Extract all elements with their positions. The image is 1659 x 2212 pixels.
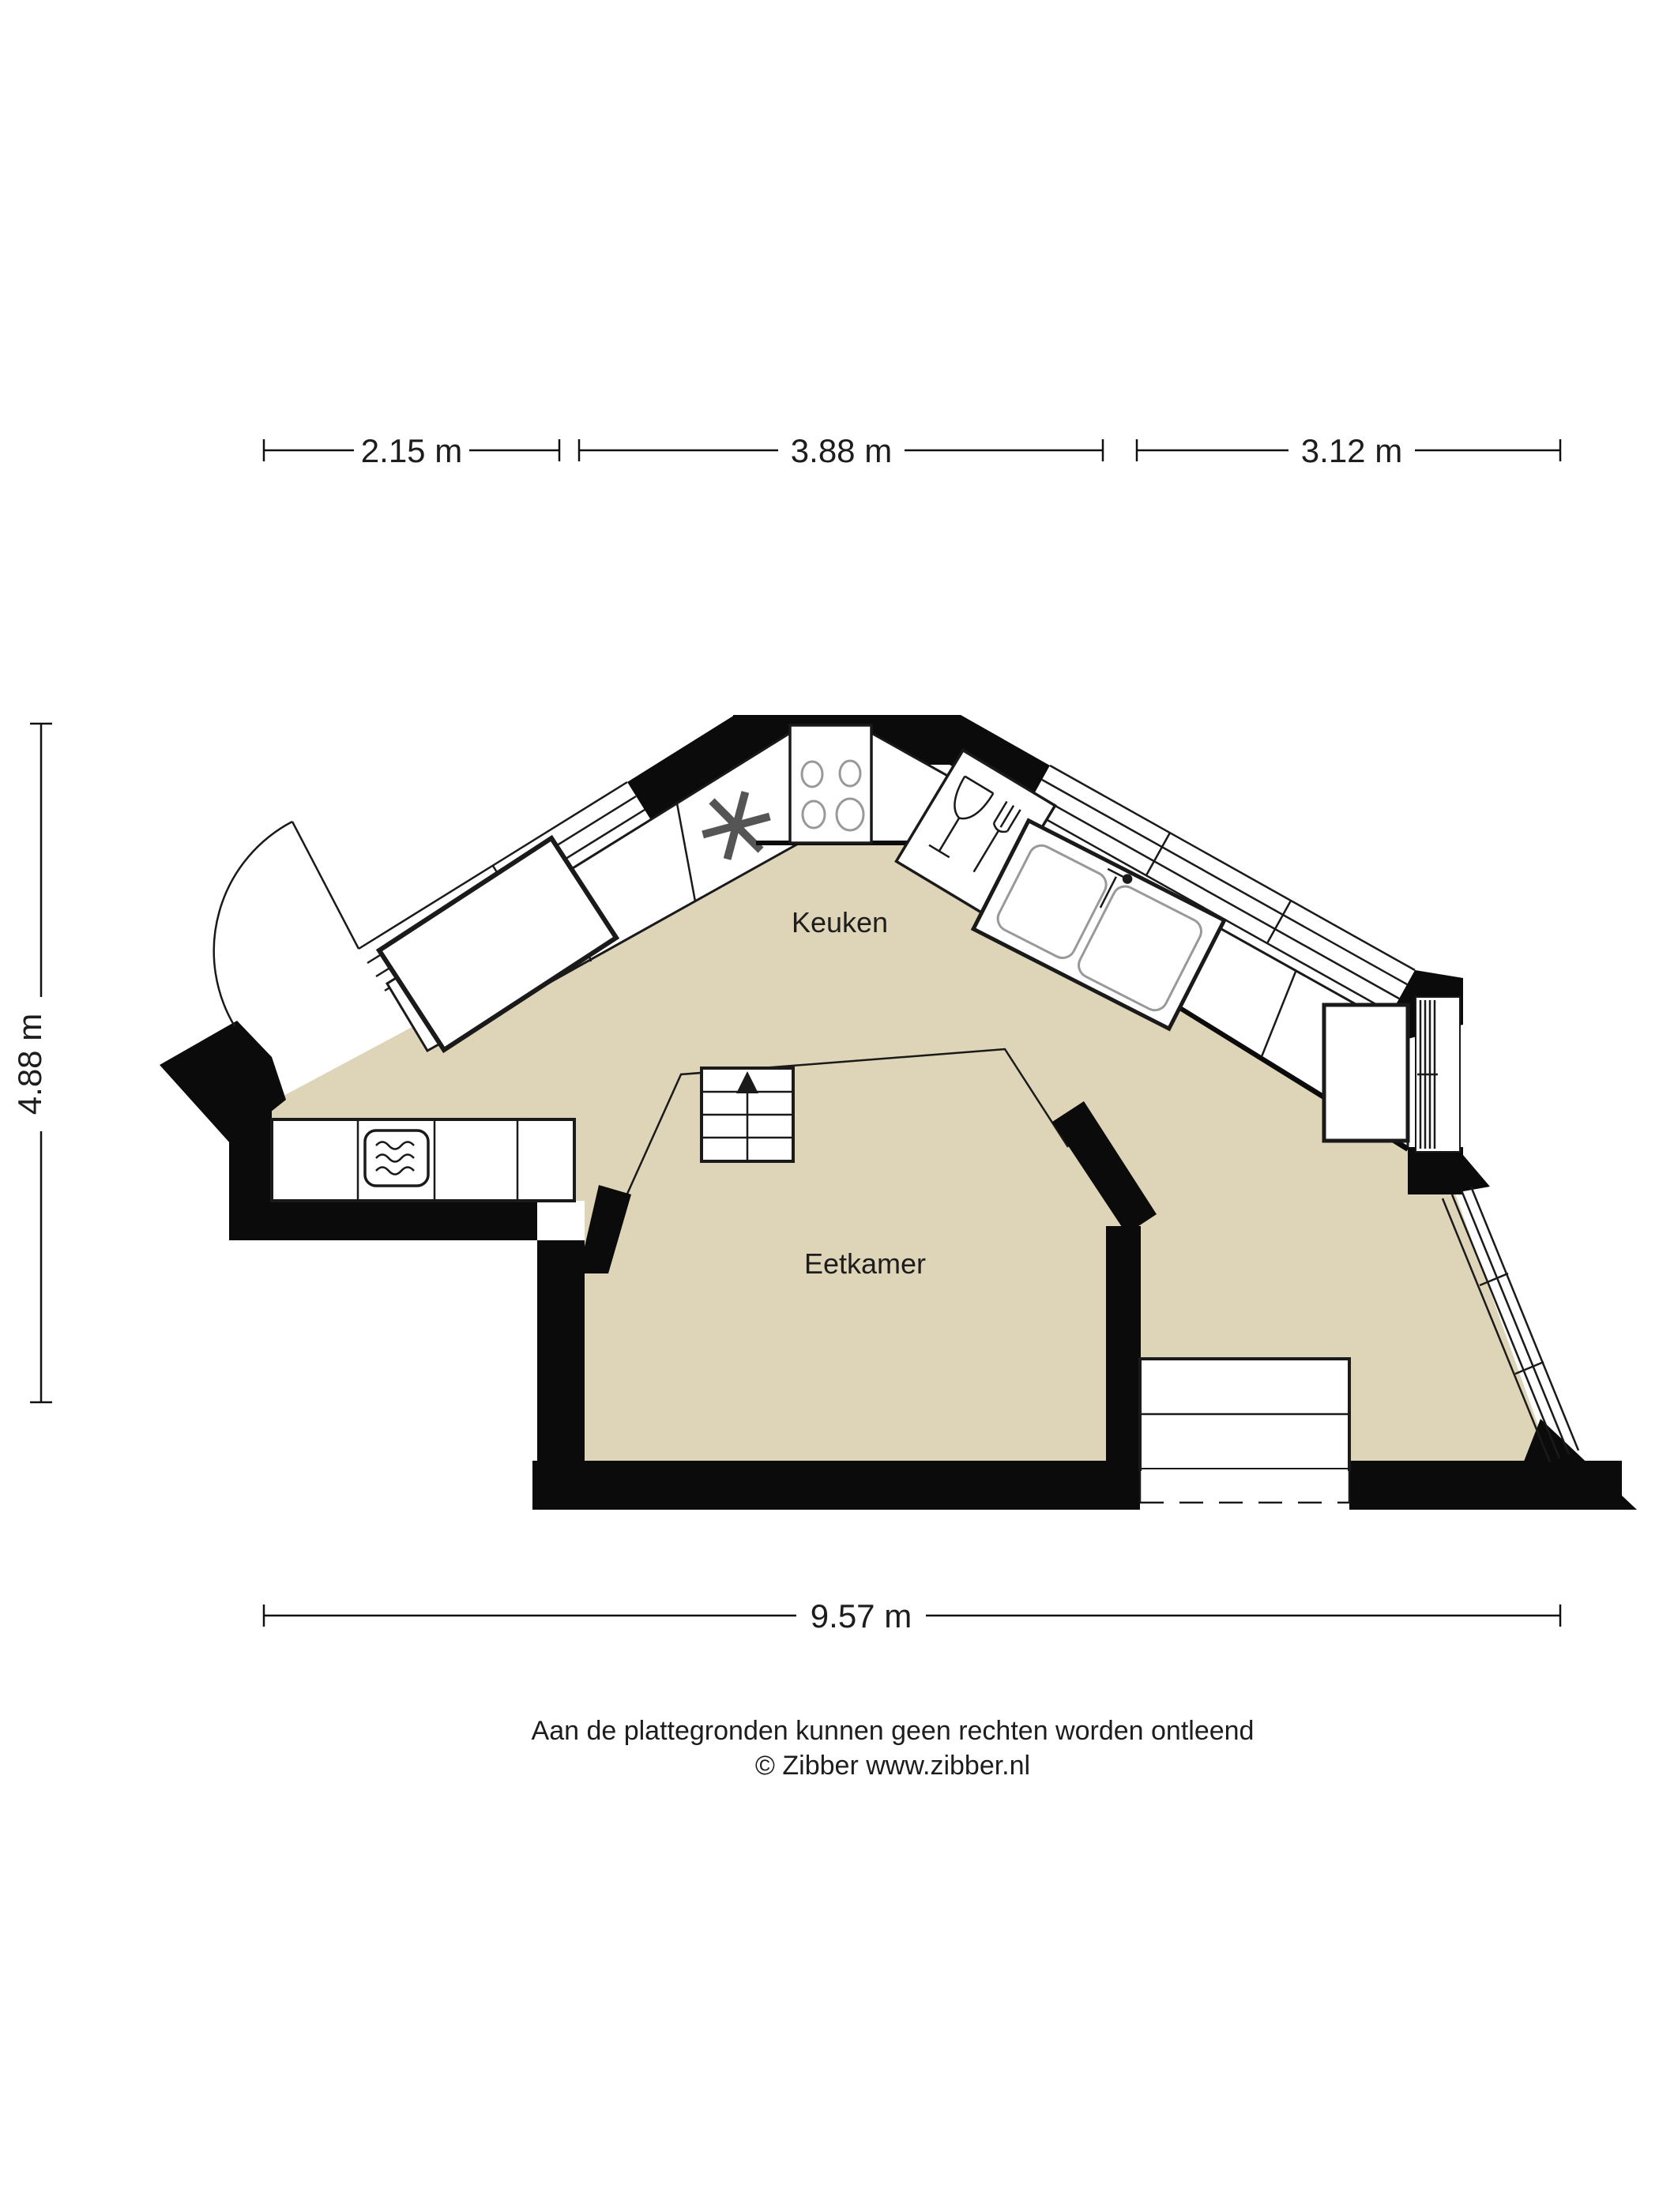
footer-copyright: © Zibber www.zibber.nl bbox=[755, 1751, 1030, 1781]
door-step bbox=[1140, 1359, 1349, 1503]
dimension-top-1: 2.15 m bbox=[264, 432, 559, 469]
microwave-counter bbox=[272, 1119, 574, 1201]
wall-southwest bbox=[229, 1201, 537, 1240]
dimension-label: 2.15 m bbox=[361, 432, 462, 469]
dimension-label: 3.88 m bbox=[791, 432, 892, 469]
stairs-icon bbox=[702, 1068, 793, 1161]
entry-door-icon bbox=[214, 822, 359, 1026]
dimension-label: 9.57 m bbox=[811, 1597, 912, 1635]
wall-right-bottom bbox=[1408, 1147, 1463, 1194]
wall-dining-right bbox=[1106, 1226, 1141, 1461]
dimension-label: 3.12 m bbox=[1301, 432, 1402, 469]
footer-disclaimer: Aan de plattegronden kunnen geen rechten… bbox=[532, 1716, 1255, 1746]
wall-bottom-left bbox=[532, 1461, 1140, 1510]
floorplan-svg: Keuken Eetkamer 2.15 m 3.88 m 3.12 m 4.8… bbox=[0, 0, 1659, 2212]
dimension-top-3: 3.12 m bbox=[1137, 432, 1560, 469]
dimension-bottom: 9.57 m bbox=[264, 1597, 1560, 1635]
room-label-eetkamer: Eetkamer bbox=[804, 1247, 926, 1280]
window-right-icon bbox=[1416, 997, 1460, 1152]
dimension-left: 4.88 m bbox=[11, 724, 52, 1402]
wall-right-bottom-wedge bbox=[1463, 1155, 1490, 1191]
room-label-keuken: Keuken bbox=[792, 906, 888, 939]
tall-cabinet bbox=[1324, 1005, 1408, 1141]
dimension-top-2: 3.88 m bbox=[579, 432, 1103, 469]
dimension-label: 4.88 m bbox=[11, 1014, 48, 1115]
microwave-icon bbox=[365, 1130, 428, 1186]
stove-icon bbox=[790, 725, 871, 843]
floorplan-page: Keuken Eetkamer 2.15 m 3.88 m 3.12 m 4.8… bbox=[0, 0, 1659, 2212]
